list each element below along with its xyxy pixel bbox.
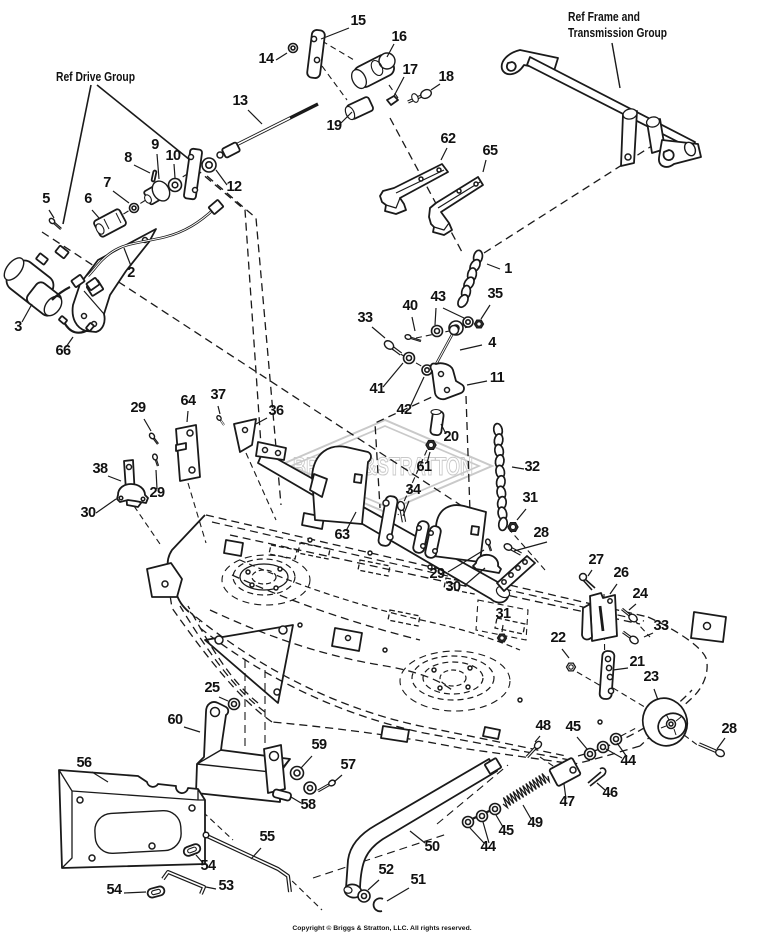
- svg-text:25: 25: [205, 680, 220, 696]
- svg-text:22: 22: [551, 630, 566, 646]
- svg-text:62: 62: [441, 131, 456, 147]
- svg-text:21: 21: [630, 654, 645, 670]
- svg-text:48: 48: [536, 718, 551, 734]
- svg-text:64: 64: [181, 393, 196, 409]
- svg-text:Transmission Group: Transmission Group: [568, 26, 667, 40]
- svg-text:45: 45: [566, 719, 581, 735]
- svg-text:20: 20: [444, 429, 459, 445]
- svg-text:65: 65: [483, 143, 498, 159]
- svg-text:31: 31: [523, 490, 538, 506]
- svg-text:33: 33: [654, 618, 669, 634]
- svg-text:17: 17: [403, 62, 418, 78]
- svg-text:29: 29: [430, 566, 445, 582]
- svg-text:11: 11: [490, 370, 505, 386]
- svg-text:54: 54: [107, 882, 122, 898]
- svg-text:66: 66: [56, 343, 71, 359]
- svg-text:32: 32: [525, 459, 540, 475]
- svg-text:61: 61: [417, 459, 432, 475]
- svg-text:51: 51: [411, 872, 426, 888]
- svg-text:50: 50: [425, 839, 440, 855]
- svg-text:Copyright © Briggs & Stratton,: Copyright © Briggs & Stratton, LLC. All …: [292, 924, 471, 932]
- svg-text:57: 57: [341, 757, 356, 773]
- svg-text:28: 28: [534, 525, 549, 541]
- svg-text:3: 3: [14, 319, 22, 335]
- svg-text:15: 15: [351, 13, 366, 29]
- svg-text:29: 29: [150, 485, 165, 501]
- svg-text:49: 49: [528, 815, 543, 831]
- svg-text:54: 54: [201, 858, 216, 874]
- svg-text:56: 56: [77, 755, 92, 771]
- svg-text:52: 52: [379, 862, 394, 878]
- svg-text:45: 45: [499, 823, 514, 839]
- svg-text:27: 27: [589, 552, 604, 568]
- svg-text:4: 4: [488, 335, 496, 351]
- svg-text:41: 41: [370, 381, 385, 397]
- svg-text:58: 58: [301, 797, 316, 813]
- svg-text:59: 59: [312, 737, 327, 753]
- svg-text:38: 38: [93, 461, 108, 477]
- svg-text:2: 2: [127, 265, 135, 281]
- svg-text:47: 47: [560, 794, 575, 810]
- svg-text:1: 1: [504, 261, 512, 277]
- svg-text:46: 46: [603, 785, 618, 801]
- svg-text:Ref Frame and: Ref Frame and: [568, 10, 640, 24]
- svg-text:60: 60: [168, 712, 183, 728]
- svg-text:53: 53: [219, 878, 234, 894]
- svg-text:42: 42: [397, 402, 412, 418]
- svg-text:44: 44: [621, 753, 636, 769]
- svg-text:12: 12: [227, 179, 242, 195]
- svg-text:23: 23: [644, 669, 659, 685]
- svg-text:18: 18: [439, 69, 454, 85]
- svg-text:34: 34: [406, 482, 421, 498]
- svg-text:37: 37: [211, 387, 226, 403]
- svg-text:30: 30: [446, 579, 461, 595]
- svg-text:19: 19: [327, 118, 342, 134]
- svg-text:40: 40: [403, 298, 418, 314]
- svg-text:13: 13: [233, 93, 248, 109]
- svg-text:10: 10: [166, 148, 181, 164]
- svg-text:Ref Drive Group: Ref Drive Group: [56, 70, 135, 84]
- svg-text:8: 8: [124, 150, 132, 166]
- svg-text:35: 35: [488, 286, 503, 302]
- svg-text:31: 31: [496, 606, 511, 622]
- svg-text:43: 43: [431, 289, 446, 305]
- svg-text:6: 6: [84, 191, 92, 207]
- svg-text:33: 33: [358, 310, 373, 326]
- svg-text:29: 29: [131, 400, 146, 416]
- svg-text:5: 5: [42, 191, 50, 207]
- svg-text:55: 55: [260, 829, 275, 845]
- svg-text:16: 16: [392, 29, 407, 45]
- svg-text:28: 28: [722, 721, 737, 737]
- svg-text:30: 30: [81, 505, 96, 521]
- svg-text:7: 7: [103, 175, 111, 191]
- svg-text:9: 9: [151, 137, 159, 153]
- svg-text:26: 26: [614, 565, 629, 581]
- svg-text:36: 36: [269, 403, 284, 419]
- svg-text:63: 63: [335, 527, 350, 543]
- svg-text:24: 24: [633, 586, 648, 602]
- svg-text:14: 14: [259, 51, 274, 67]
